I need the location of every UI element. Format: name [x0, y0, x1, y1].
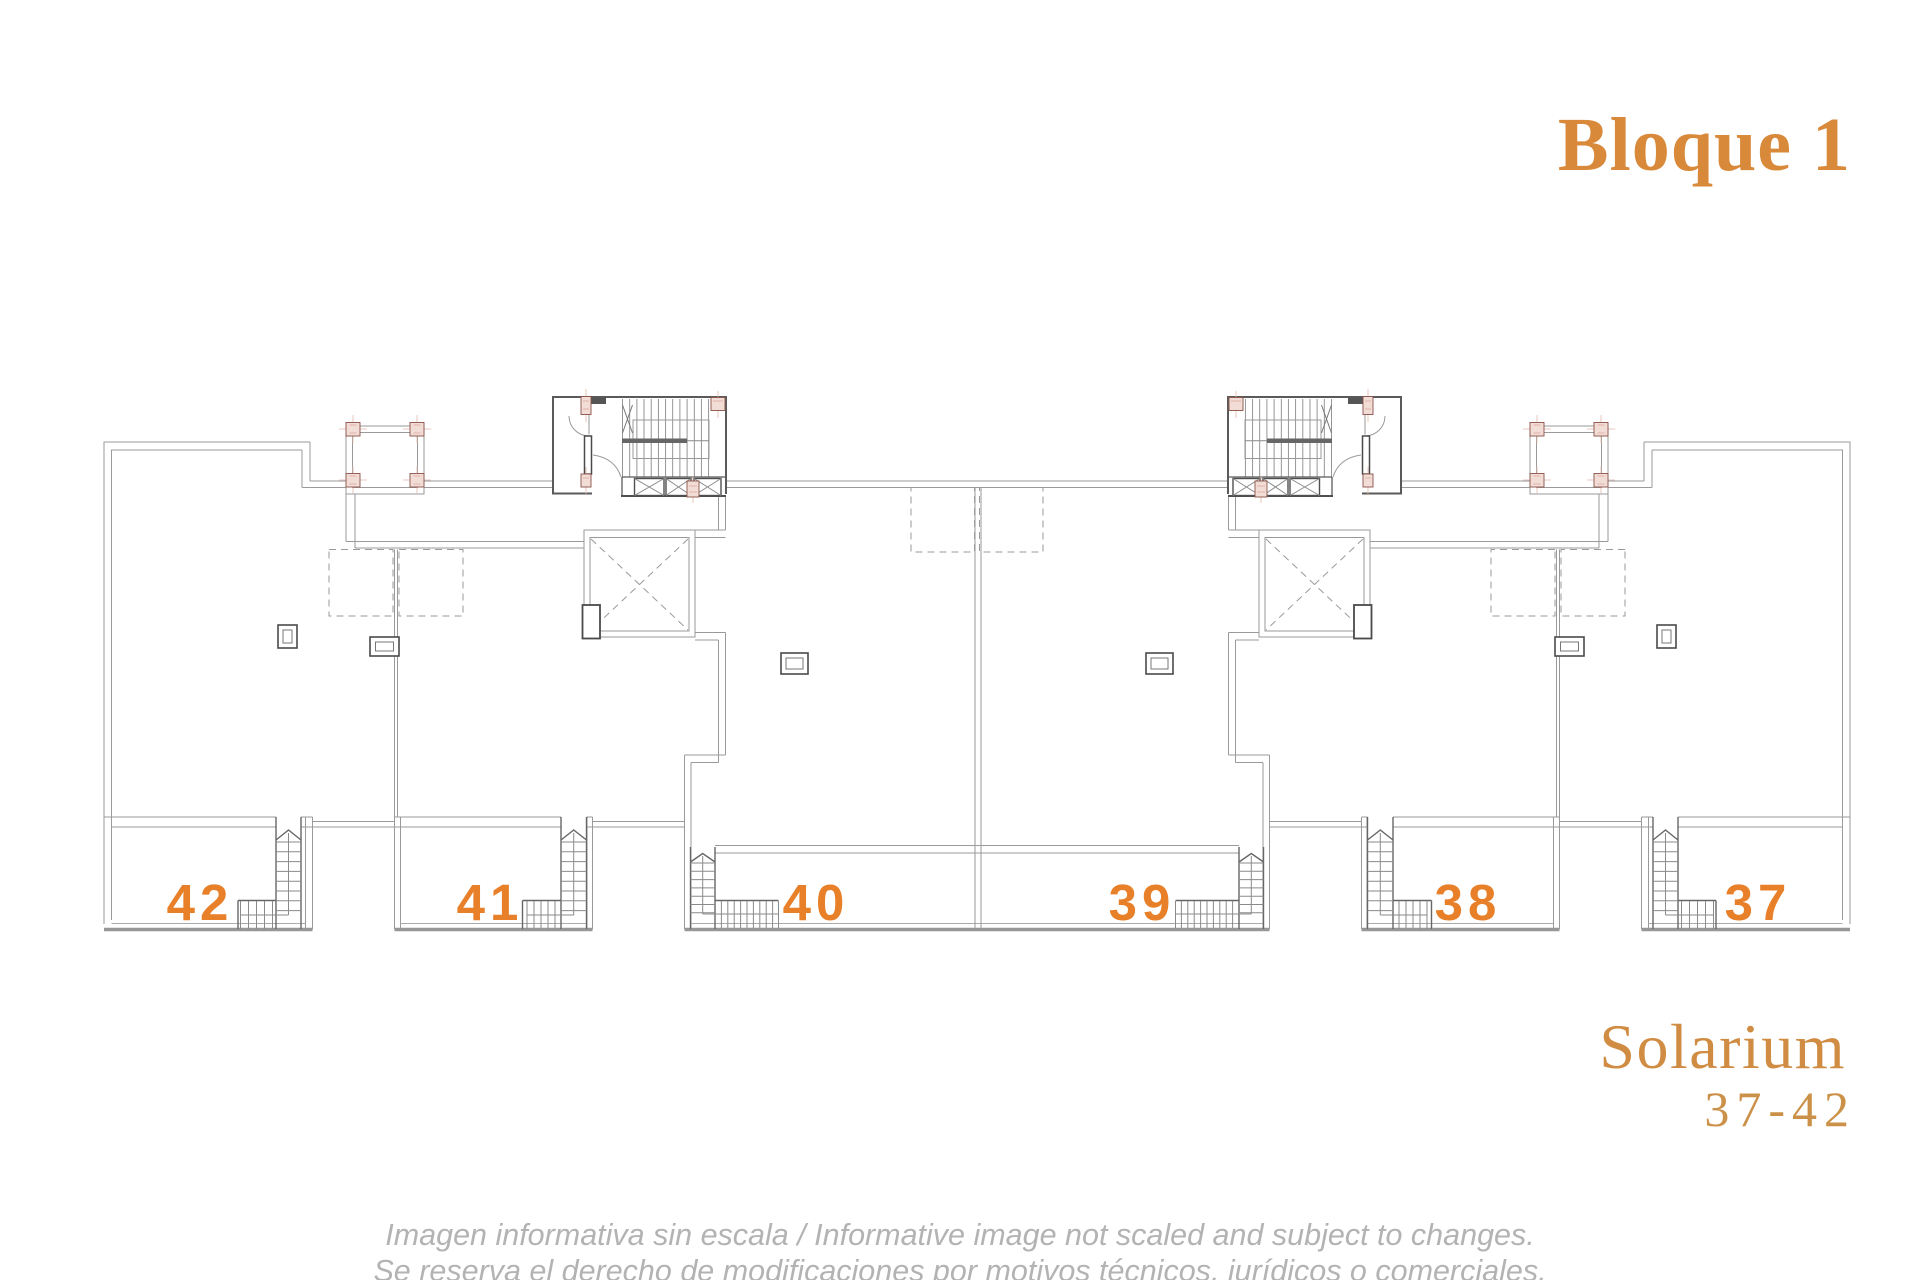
svg-text:38: 38 [1435, 874, 1502, 931]
svg-text:37-42: 37-42 [1704, 1081, 1856, 1137]
svg-text:40: 40 [783, 874, 850, 931]
svg-text:39: 39 [1109, 874, 1176, 931]
svg-text:41: 41 [457, 874, 524, 931]
svg-text:42: 42 [167, 874, 234, 931]
svg-text:Bloque 1: Bloque 1 [1558, 103, 1851, 187]
svg-text:Solarium: Solarium [1599, 1011, 1846, 1082]
svg-text:Se reserva el derecho de modif: Se reserva el derecho de modificaciones … [373, 1254, 1546, 1280]
svg-text:Imagen informativa sin escala: Imagen informativa sin escala / Informat… [385, 1218, 1534, 1252]
svg-text:37: 37 [1725, 874, 1792, 931]
